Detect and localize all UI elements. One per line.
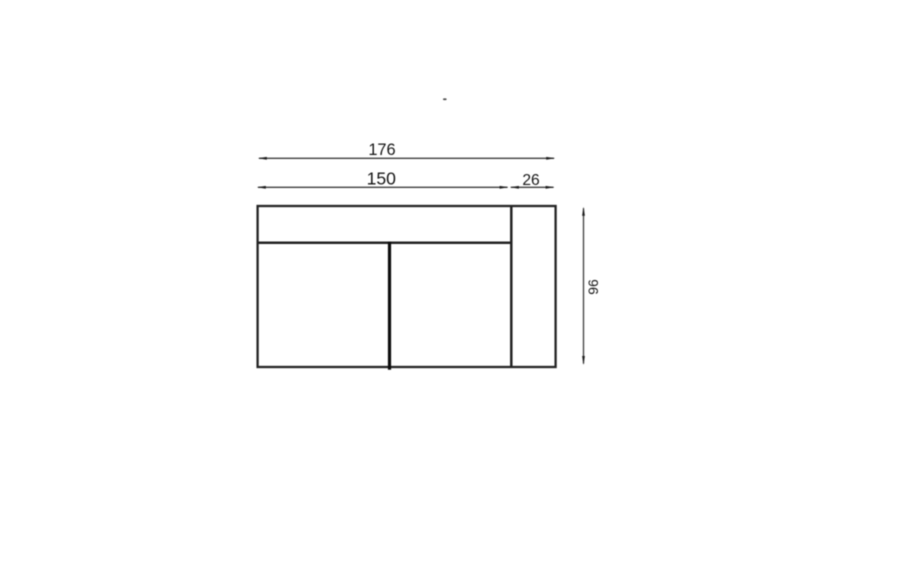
svg-text:150: 150 — [367, 169, 397, 189]
svg-text:176: 176 — [368, 141, 395, 159]
svg-text:96: 96 — [585, 279, 601, 295]
svg-text:26: 26 — [522, 172, 539, 189]
